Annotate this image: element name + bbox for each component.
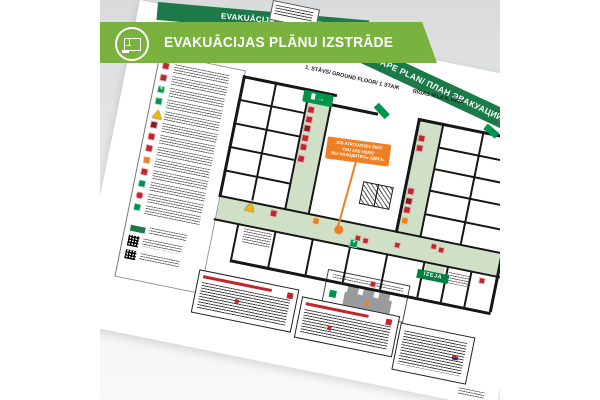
equipment-marker-icon	[407, 187, 415, 195]
equipment-marker-icon	[430, 243, 437, 250]
you-are-here-mini-dot	[365, 301, 369, 305]
wall	[430, 190, 500, 208]
equipment-marker-icon	[303, 124, 311, 132]
wall	[305, 239, 314, 275]
fire-icon	[385, 318, 392, 325]
wall	[230, 224, 239, 260]
fire-icon	[287, 292, 294, 299]
instructions-text	[398, 330, 467, 376]
wall	[416, 262, 425, 298]
wall	[438, 147, 500, 165]
equipment-marker-icon	[306, 106, 314, 114]
banner-title: EVAKUĀCIJAS PLĀNU IZSTRĀDE	[164, 22, 393, 63]
assembly-point-icon	[329, 290, 337, 298]
equipment-marker-icon	[270, 209, 278, 217]
evacuation-route-icon	[138, 179, 146, 187]
legend-header-text	[274, 5, 313, 23]
fire-equipment-icon	[147, 132, 155, 140]
floor-plan-icon	[115, 27, 149, 61]
equipment-marker-icon	[305, 115, 313, 123]
fire-alarm-panel-icon	[145, 144, 153, 152]
inline-fire-icon	[327, 326, 332, 331]
assembly-point-icon	[133, 203, 141, 211]
fire-extinguisher-icon	[162, 62, 170, 70]
inline-fire-icon	[235, 299, 240, 304]
equipment-marker-icon	[394, 242, 401, 249]
fire-hose-reel-icon	[159, 74, 167, 82]
equipment-marker-icon	[478, 277, 485, 284]
equipment-marker-icon	[301, 134, 309, 142]
stairs-hatch	[373, 184, 393, 210]
equipment-marker-icon	[401, 217, 409, 225]
equipment-marker-icon	[438, 246, 445, 253]
equipment-marker-icon	[416, 144, 424, 152]
wall	[251, 82, 277, 201]
equipment-marker-icon	[299, 143, 307, 151]
wall	[460, 131, 485, 245]
exit-arrow-icon: →	[316, 93, 326, 103]
first-aid-icon: +	[349, 239, 358, 248]
emergency-exit-icon	[155, 97, 163, 105]
equipment-marker-icon	[403, 206, 411, 214]
equipment-marker-icon	[369, 281, 376, 288]
floor-plan-glyph-detail	[122, 50, 129, 53]
fire-alarm-call-point-icon	[140, 168, 148, 176]
hazard-warning-icon	[244, 201, 256, 212]
first-aid-kit-icon: +	[157, 85, 165, 93]
equipment-marker-icon	[312, 216, 320, 224]
fire-hydrant-icon	[150, 121, 158, 129]
equipment-marker-icon	[405, 197, 413, 205]
wall	[218, 75, 245, 197]
hazard-warning-icon	[152, 109, 164, 120]
wall	[434, 168, 500, 186]
wall	[329, 103, 378, 115]
exit-door-marker	[374, 102, 390, 118]
equipment-marker-icon	[296, 155, 304, 163]
equipment-marker-icon	[362, 237, 369, 244]
page: + + → IZEJA JŪS ATRODATIES ŠEIT/ YOU ARE…	[0, 0, 600, 400]
site-banner: EVAKUĀCIJAS PLĀNU IZSTRĀDE	[100, 22, 437, 63]
electrical-switchboard-icon	[143, 156, 151, 164]
equipment-marker-icon	[417, 134, 425, 142]
